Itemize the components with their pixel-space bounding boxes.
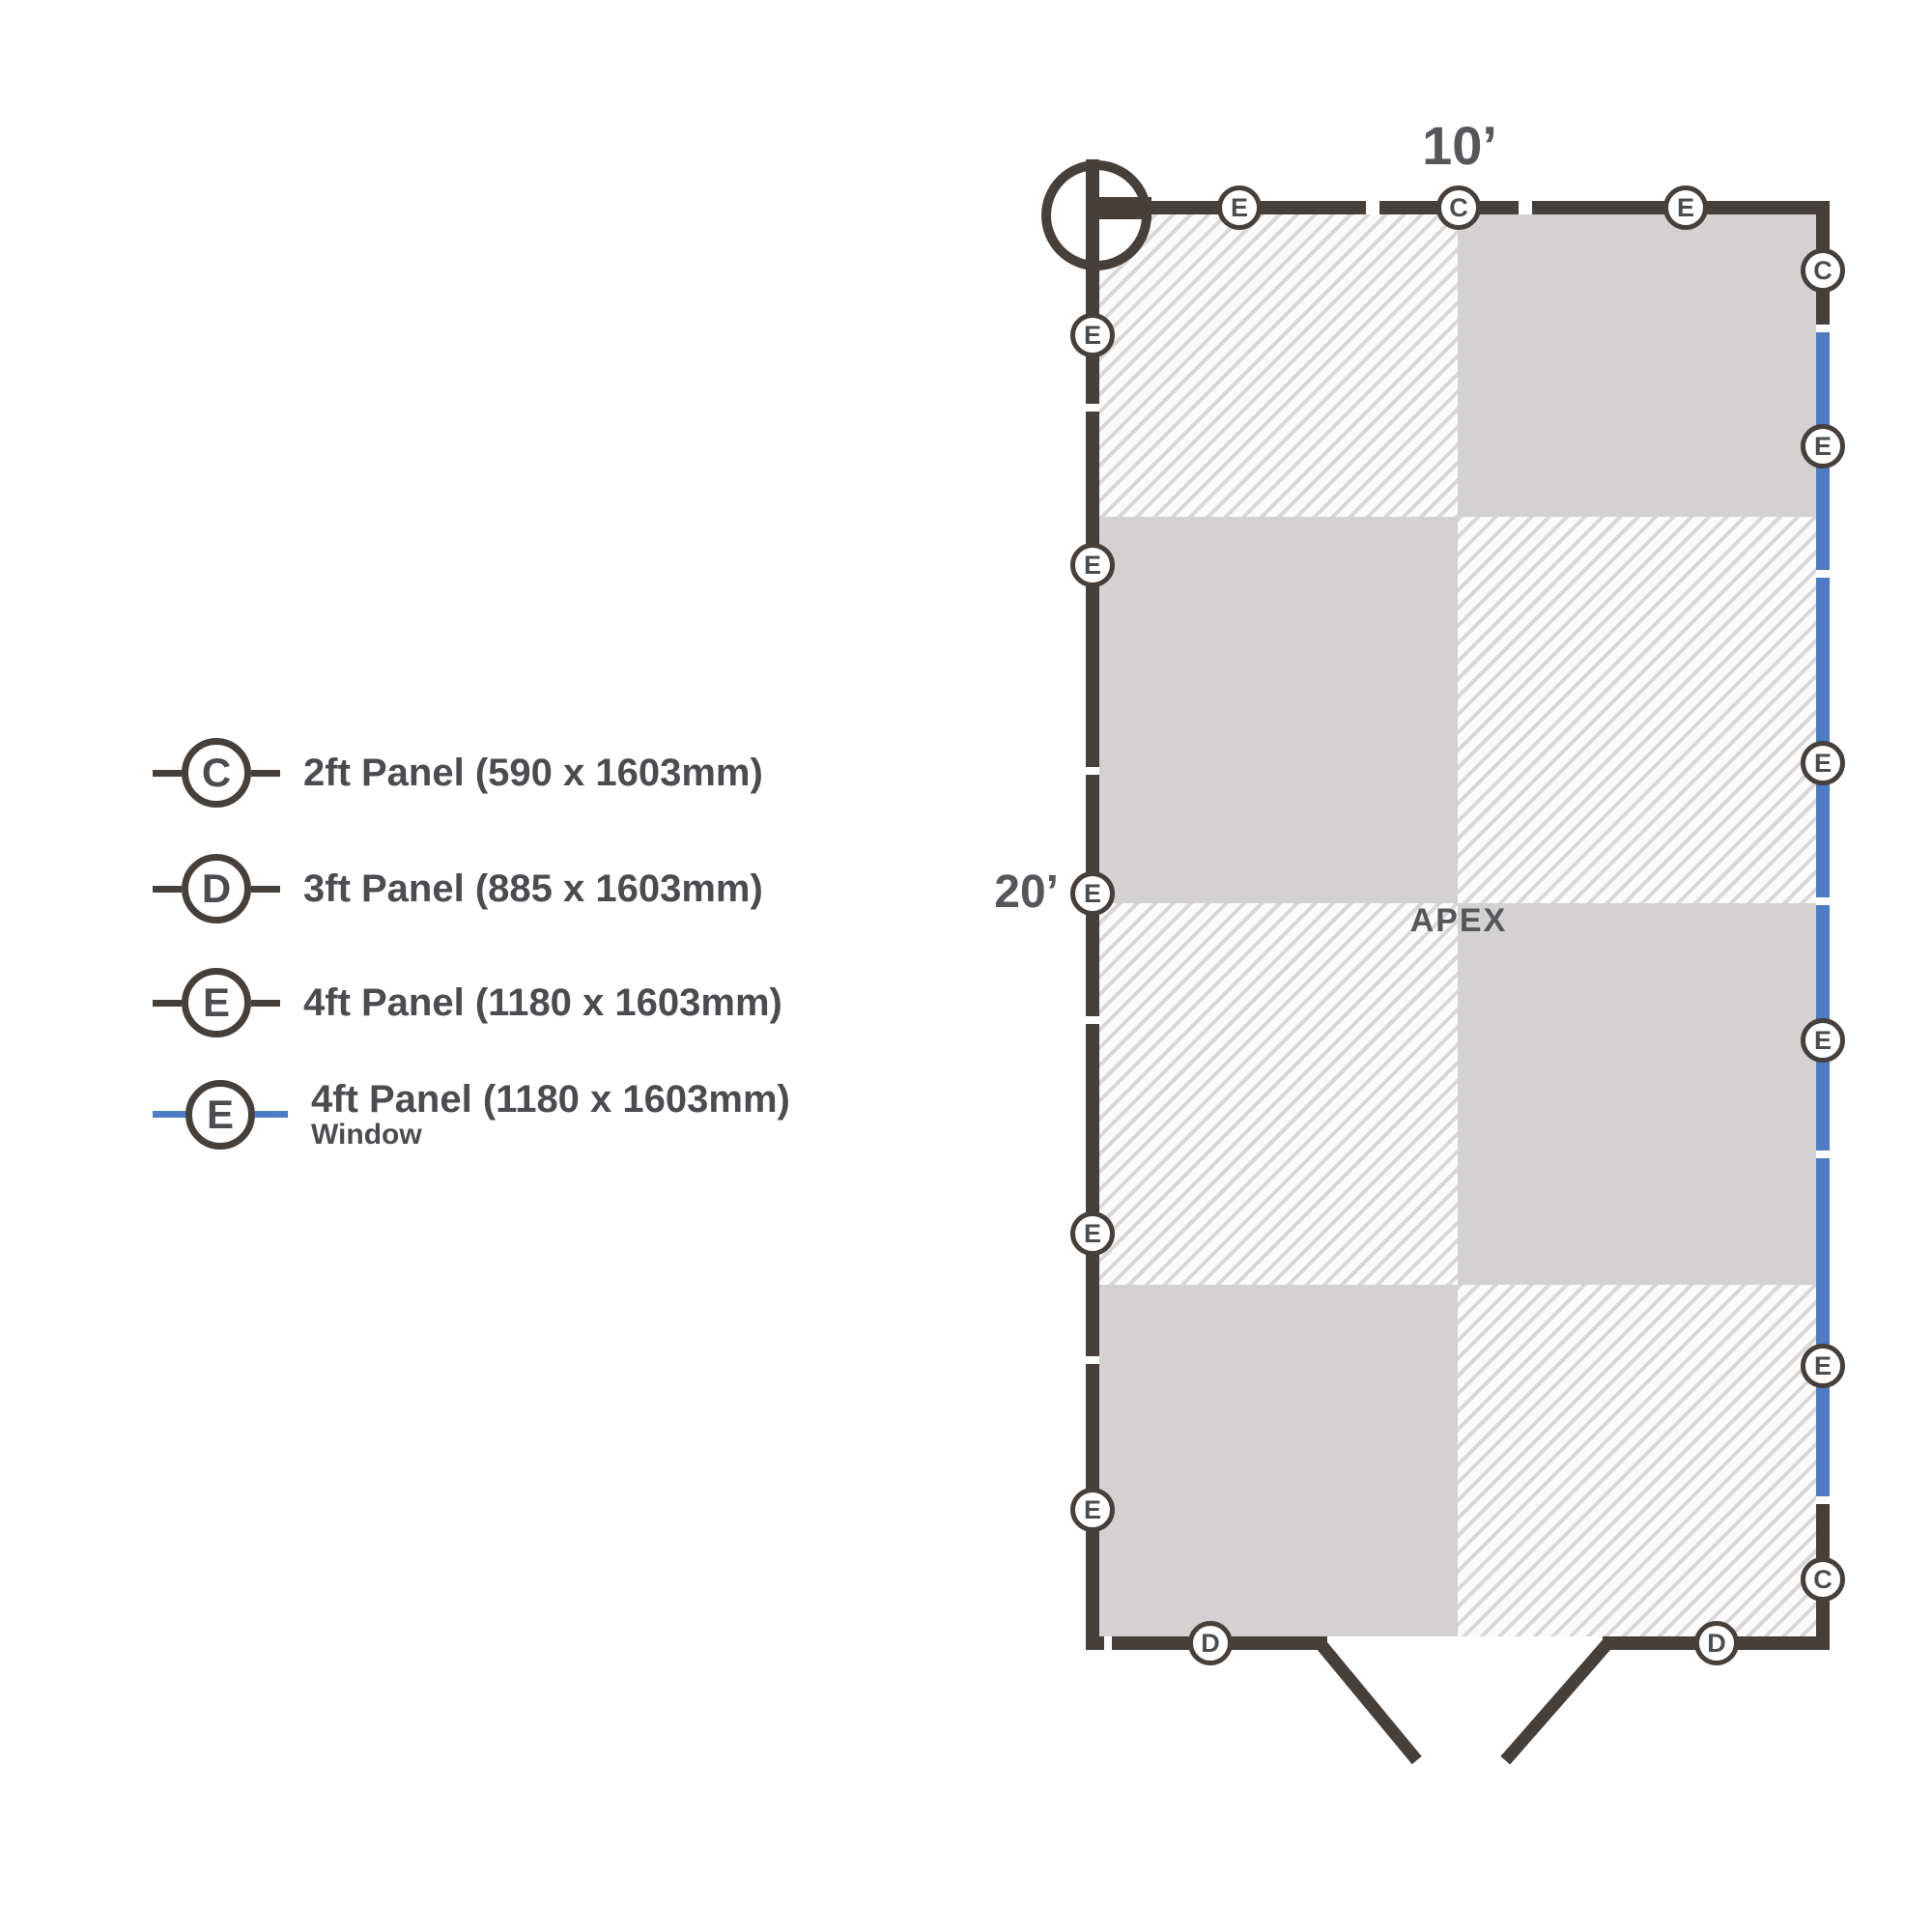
- panel-line-icon: [153, 1000, 182, 1007]
- panel-marker-d: D: [1188, 1621, 1233, 1665]
- floor-cell-gray: [1458, 903, 1816, 1285]
- panel-marker-e: E: [1070, 313, 1115, 357]
- wall-segment: [1086, 1024, 1099, 1356]
- panel-line-icon: [251, 770, 280, 777]
- panel-symbol-e-window: E: [185, 1080, 255, 1150]
- panel-marker-e: E: [1070, 871, 1115, 916]
- panel-marker-e: E: [1801, 1018, 1845, 1063]
- panel-marker-c: C: [1801, 248, 1845, 293]
- panel-marker-c: C: [1436, 185, 1481, 230]
- window-line-icon: [255, 1111, 288, 1118]
- floor-cell-hatch: [1099, 214, 1458, 517]
- window-sublabel: Window: [311, 1120, 790, 1151]
- legend-item-d-panel: D 3ft Panel (885 x 1603mm): [153, 854, 763, 923]
- legend-item-c-panel: C 2ft Panel (590 x 1603mm): [153, 738, 763, 808]
- panel-marker-e: E: [1663, 185, 1708, 230]
- window-wall-segment: [1816, 578, 1830, 897]
- panel-marker-c: C: [1801, 1557, 1845, 1602]
- panel-letter: C: [202, 750, 231, 796]
- height-dimension-label: 20’: [866, 866, 1059, 919]
- panel-label: 4ft Panel (1180 x 1603mm): [303, 982, 782, 1023]
- floor-cell-hatch: [1099, 903, 1458, 1285]
- panel-marker-d: D: [1694, 1621, 1739, 1665]
- wall-segment: [1086, 412, 1099, 767]
- panel-marker-e: E: [1217, 185, 1262, 230]
- width-dimension-label: 10’: [1363, 114, 1556, 177]
- panel-marker-e: E: [1801, 1344, 1845, 1388]
- floor-cell-hatch: [1458, 1285, 1816, 1636]
- panel-label: 4ft Panel (1180 x 1603mm) Window: [311, 1079, 790, 1151]
- panel-label: 2ft Panel (590 x 1603mm): [303, 753, 763, 793]
- window-wall-segment: [1816, 1158, 1830, 1496]
- legend-item-e-window-panel: E 4ft Panel (1180 x 1603mm) Window: [153, 1079, 790, 1151]
- panel-marker-e: E: [1070, 1488, 1115, 1532]
- panel-symbol-c: C: [182, 738, 251, 808]
- panel-line-icon: [251, 1000, 280, 1007]
- panel-line-icon: [251, 886, 280, 893]
- diagram-canvas: C 2ft Panel (590 x 1603mm) D 3ft Panel (…: [0, 0, 1932, 1932]
- panel-marker-e: E: [1801, 424, 1845, 469]
- panel-marker-e: E: [1070, 1211, 1115, 1256]
- apex-area-label: APEX: [1362, 902, 1555, 940]
- door-leaf-right: [1500, 1638, 1612, 1764]
- floor-cell-gray: [1099, 1285, 1458, 1636]
- panel-letter: E: [207, 1092, 234, 1138]
- panel-marker-e: E: [1801, 741, 1845, 785]
- wall-segment: [1086, 1636, 1104, 1650]
- panel-letter: E: [203, 980, 230, 1026]
- panel-line-icon: [153, 886, 182, 893]
- panel-symbol-e: E: [182, 968, 251, 1037]
- panel-letter: D: [202, 866, 231, 912]
- panel-line-icon: [153, 770, 182, 777]
- panel-marker-e: E: [1070, 543, 1115, 587]
- door-leaf-left: [1315, 1638, 1422, 1764]
- legend-item-e-panel: E 4ft Panel (1180 x 1603mm): [153, 968, 782, 1037]
- wall-segment: [1093, 197, 1151, 219]
- panel-symbol-d: D: [182, 854, 251, 923]
- floor-cell-gray: [1458, 214, 1816, 517]
- floor-cell-gray: [1099, 517, 1458, 903]
- window-line-icon: [153, 1111, 185, 1118]
- panel-label: 3ft Panel (885 x 1603mm): [303, 868, 763, 909]
- floor-cell-hatch: [1458, 517, 1816, 903]
